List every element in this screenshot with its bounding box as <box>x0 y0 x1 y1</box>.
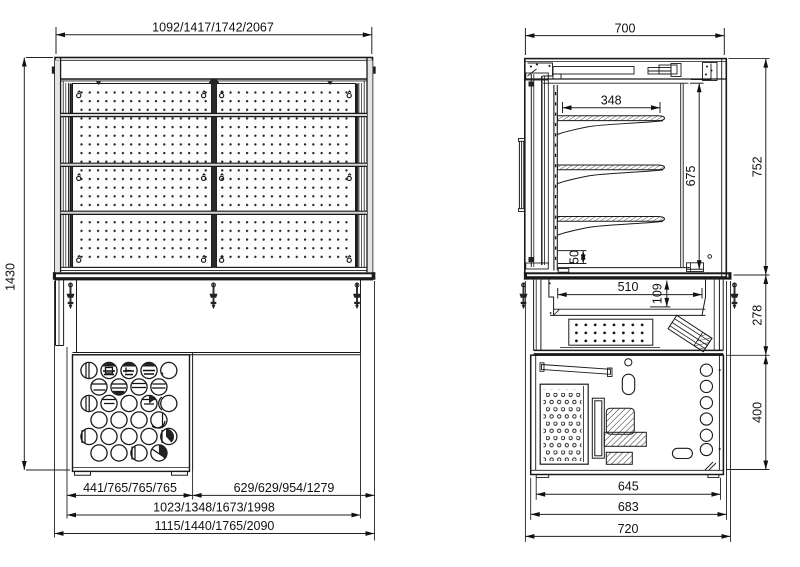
svg-text:645: 645 <box>618 480 639 494</box>
svg-text:109: 109 <box>650 283 664 304</box>
svg-text:720: 720 <box>618 522 639 536</box>
svg-text:1115/1440/1765/2090: 1115/1440/1765/2090 <box>155 519 275 533</box>
svg-text:675: 675 <box>684 166 698 187</box>
svg-text:510: 510 <box>618 280 639 294</box>
svg-text:50: 50 <box>568 250 582 264</box>
svg-text:278: 278 <box>751 305 765 326</box>
svg-text:683: 683 <box>618 500 639 514</box>
svg-text:629/629/954/1279: 629/629/954/1279 <box>234 481 335 495</box>
svg-text:752: 752 <box>751 156 765 177</box>
svg-text:1023/1348/1673/1998: 1023/1348/1673/1998 <box>153 500 275 514</box>
svg-text:441/765/765/765: 441/765/765/765 <box>83 481 177 495</box>
svg-text:700: 700 <box>615 21 636 35</box>
svg-text:1430: 1430 <box>4 263 18 291</box>
svg-text:348: 348 <box>601 93 622 107</box>
svg-text:1092/1417/1742/2067: 1092/1417/1742/2067 <box>152 21 274 35</box>
svg-text:400: 400 <box>751 402 765 423</box>
